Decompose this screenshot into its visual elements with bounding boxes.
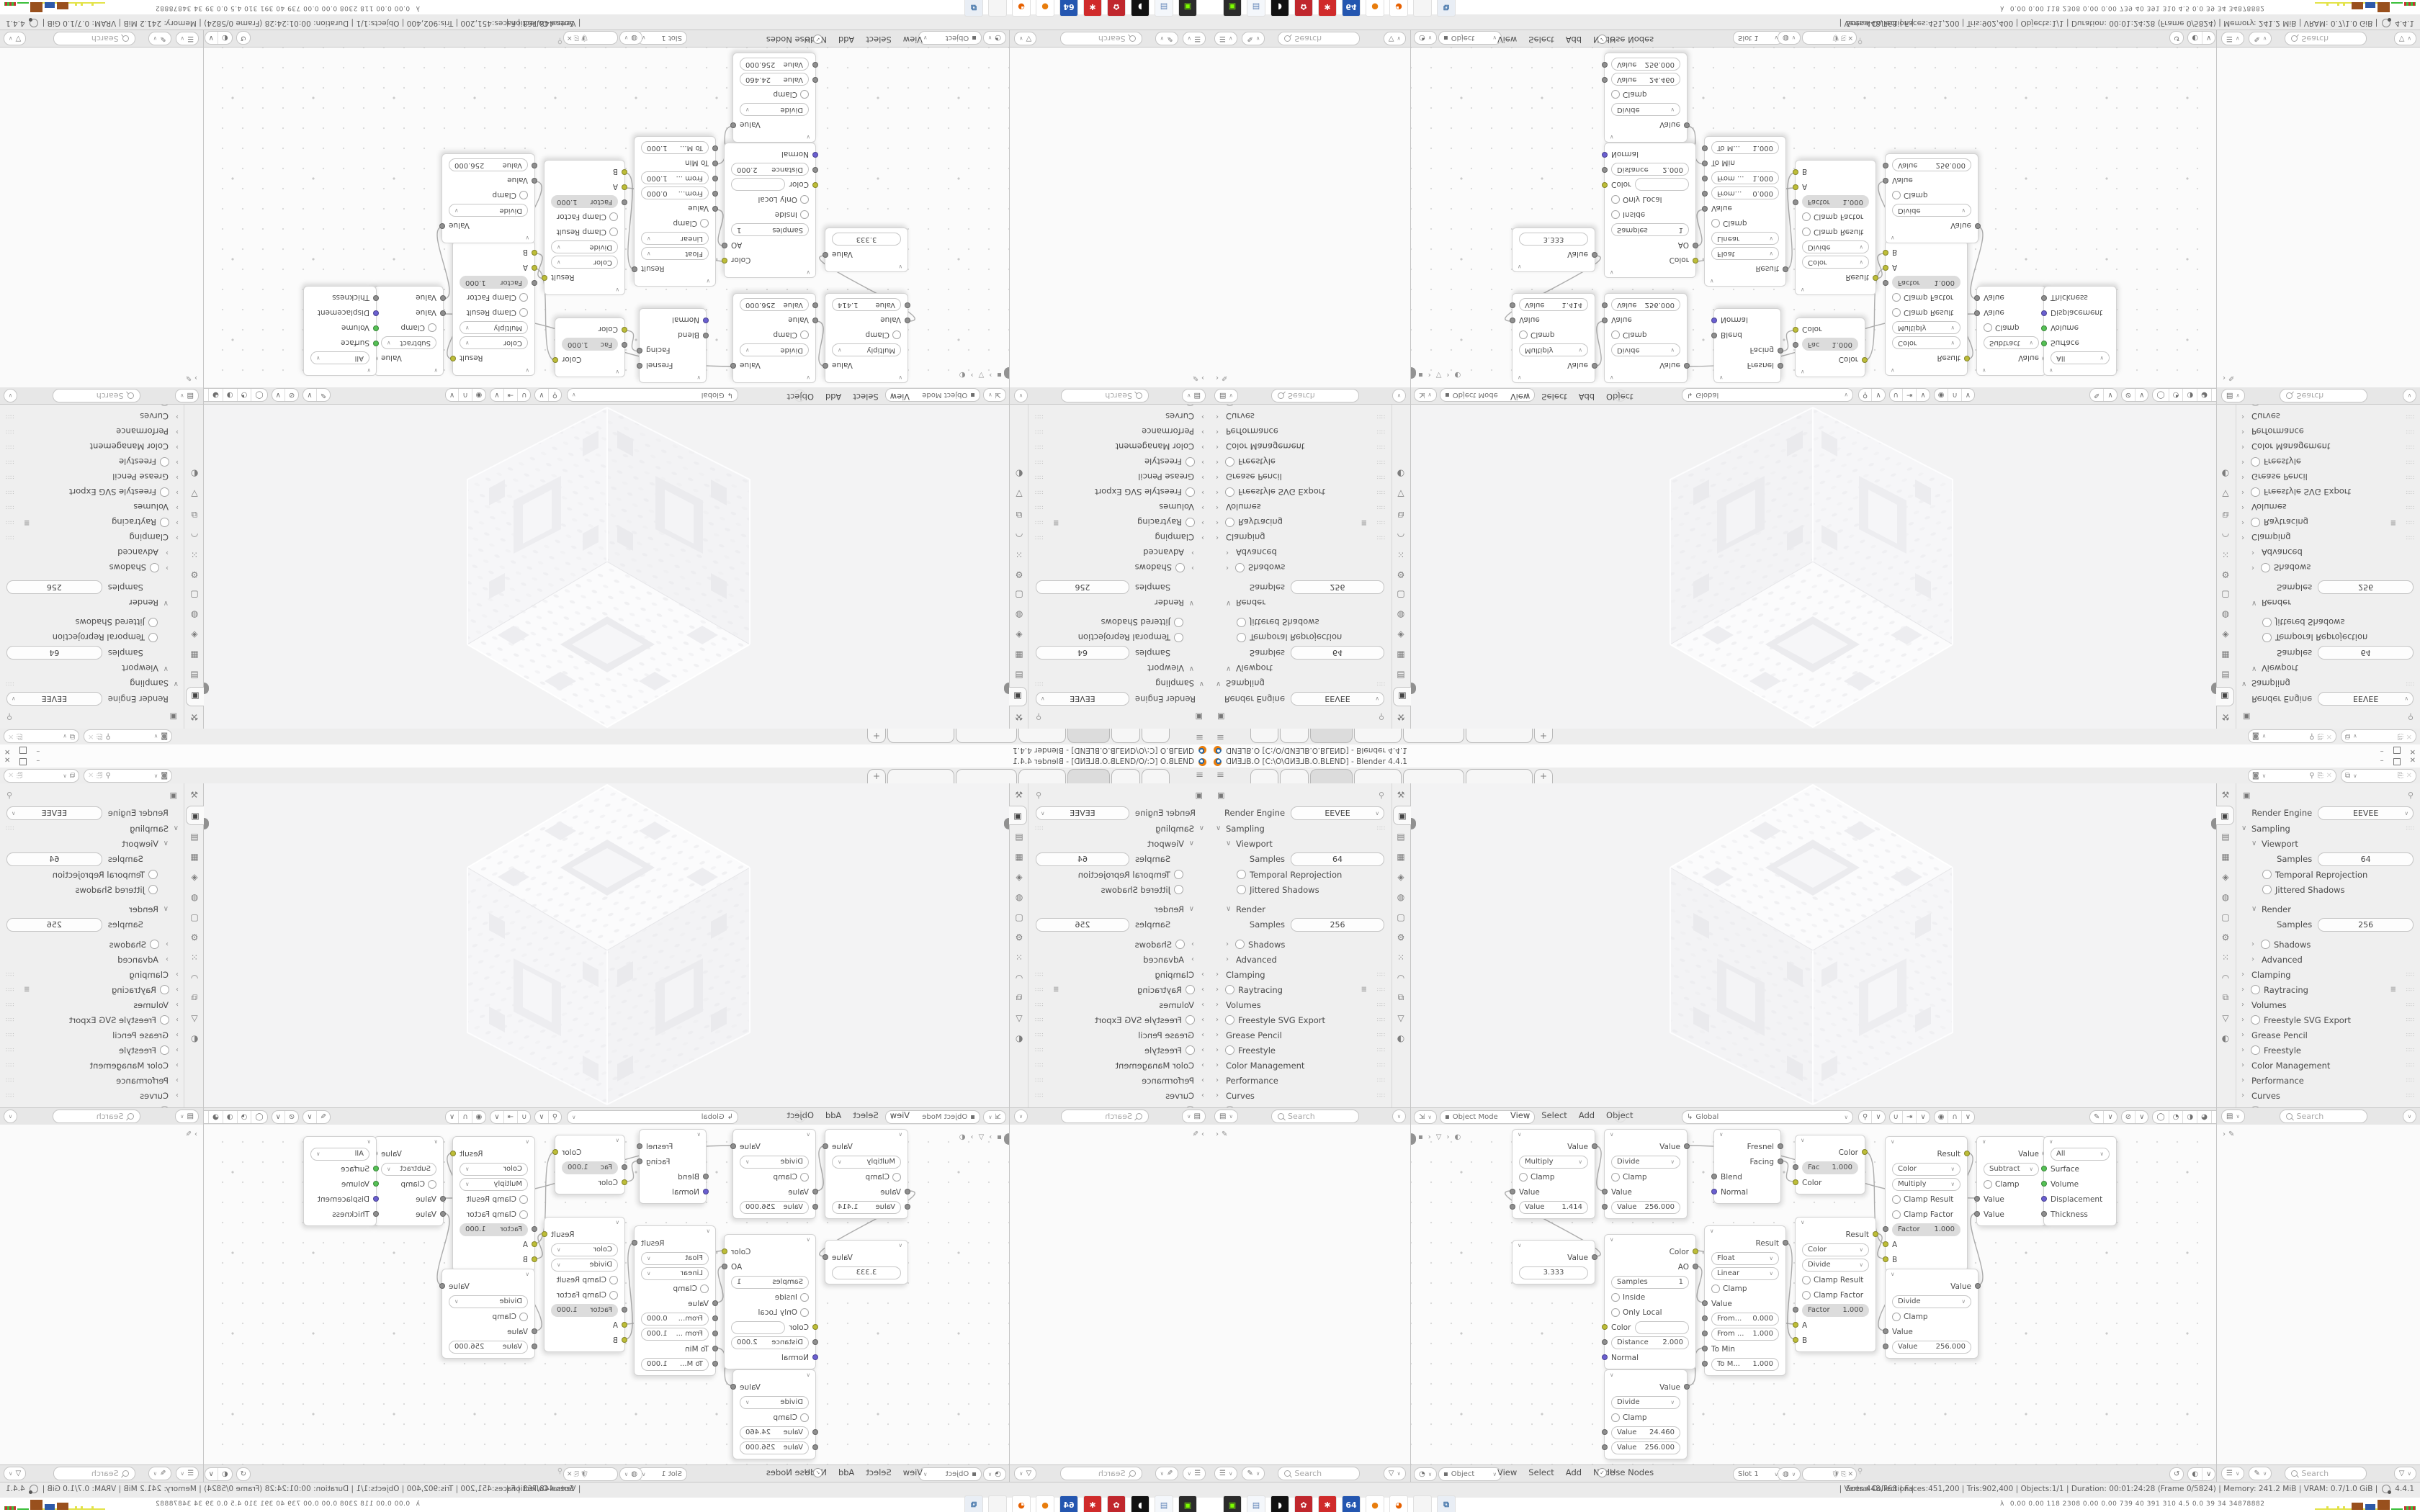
socket-in-value[interactable] [812,1189,818,1194]
checkbox[interactable] [1225,1015,1234,1025]
socket-in-b[interactable] [622,1337,627,1343]
view-layer-name-field[interactable] [25,772,60,780]
shader-editor-type-button[interactable]: ◔∨ [983,31,1006,45]
panel-section-header[interactable]: ›Advanced [1028,952,1210,967]
socket-out-result[interactable] [1783,266,1788,272]
shading-mode-icon[interactable]: ✎ [2090,389,2104,401]
node-header[interactable]: ∨ [2044,366,2116,375]
filter-funnel-button[interactable]: ▽∨ [1384,32,1406,45]
checkbox-row[interactable]: Temporal Reprojection [1028,630,1210,645]
properties-tab-render[interactable]: ▣ [2216,806,2234,825]
value-field[interactable]: Value256.000 [740,299,809,312]
node-select[interactable]: Linear∨ [1711,1267,1779,1280]
checkbox[interactable] [1186,518,1195,527]
workspace-tab[interactable] [1142,729,1170,743]
node-material-output[interactable]: ∨All∨SurfaceVolumeDisplacementThickness [2043,1136,2117,1226]
value-field[interactable]: Value24.460 [740,73,809,86]
close-button[interactable]: ✕ [4,747,10,755]
collapse-menu-button[interactable]: ∨ [4,1110,17,1123]
view-layer-name-field[interactable] [25,732,60,740]
checkbox[interactable] [2261,940,2270,949]
select-field[interactable]: EEVEE∨ [1036,806,1129,820]
node-math-divide-3[interactable]: ∨ValueDivide∨ClampValue24.460Value256.00… [732,53,816,143]
panel-section-header[interactable]: ›Advanced [2236,545,2420,560]
node-layer-weight[interactable]: ∨FresnelFacingBlendNormal [1713,1129,1781,1204]
properties-tab-scene[interactable]: ◈ [1010,626,1028,644]
node-canvas[interactable]: ▪›▽›◐ ∨ValueMultiply∨ClampValueValue1.41… [1411,48,2216,387]
transform-orientation-select[interactable]: ↳Global∨ [1682,1110,1853,1124]
tool-icon[interactable]: ◉ [1935,1111,1949,1123]
shader-editor-type-button[interactable]: ◔∨ [1414,1467,1437,1481]
value-field[interactable]: Value256.000 [1611,299,1680,312]
node-math-divide-3[interactable]: ∨ValueDivide∨ClampValue24.460Value256.00… [1604,53,1688,143]
browse-material-button[interactable]: ◍∨ [619,1467,642,1481]
viewport-canvas[interactable] [1411,405,2216,729]
snap-toggle-button[interactable]: ↺ [2169,31,2184,45]
search-input[interactable]: Search [1060,1467,1142,1480]
node-header[interactable]: ∨ [1605,268,1695,277]
properties-tab-scene[interactable]: ◈ [1010,868,1028,886]
taskbar-icon-save-64[interactable]: 64 [1059,1495,1078,1512]
properties-tab-render[interactable]: ▣ [1009,806,1027,825]
properties-tab-world[interactable]: ◍ [1392,888,1410,906]
filter-type-button[interactable]: ✎∨ [148,32,171,45]
node-value[interactable]: ∨Value3.333 [825,1240,908,1284]
socket-out-facing[interactable] [1778,1158,1783,1164]
panel-section-header[interactable]: ›Performance∷∷ [0,424,184,439]
panel-section-header[interactable]: ›Shadows [1210,937,1391,952]
shading-mode-icon[interactable]: ◔ [2169,389,2184,401]
menu-hamburger-icon[interactable]: ≡ [1196,770,1204,780]
panel-section-header[interactable]: ∨Render [0,595,184,611]
minimize-button[interactable]: – [2380,757,2384,765]
taskbar-icon-save-64[interactable]: 64 [1342,1495,1361,1512]
socket-in-displacement[interactable] [373,1196,379,1202]
properties-tab-object[interactable]: ▢ [2217,908,2234,926]
close-button[interactable]: ✕ [2410,757,2416,765]
menu-add[interactable]: Add [1579,1110,1595,1120]
properties-tab-tool[interactable]: ⚒ [186,708,203,726]
checkbox-row[interactable]: Jittered Shadows [2236,615,2420,630]
node-select[interactable]: Color∨ [1802,1243,1869,1256]
properties-tab-particles[interactable]: ⁙ [1392,948,1410,966]
panel-section-header[interactable]: ›Freestyle∷∷ [1028,1043,1210,1058]
properties-tab-material[interactable]: ◐ [2217,1029,2234,1047]
search-input[interactable]: Search [53,1467,135,1480]
node-select[interactable]: All∨ [310,352,369,365]
value-field[interactable]: Distance2.000 [1611,1336,1689,1349]
value-field[interactable]: Distance2.000 [731,163,809,176]
minimize-button[interactable]: – [36,747,40,755]
value-field[interactable]: Value256.000 [1611,1441,1680,1454]
shading-mode-icon[interactable]: ◑ [223,1111,237,1123]
tool-icon[interactable]: ⇥ [503,1111,517,1123]
properties-tab-object[interactable]: ▢ [2217,586,2234,604]
socket-in-value[interactable] [712,206,718,212]
close-icon[interactable]: ✕ [8,772,14,780]
socket-out-color[interactable] [1693,1248,1698,1254]
checkbox-row[interactable]: Jittered Shadows [0,615,184,630]
panel-section-header[interactable]: ›Freestyle SVG Export∷∷ [0,485,184,500]
shading-mode-icon[interactable]: ⊘ [284,1111,298,1123]
taskbar-icon-ghost[interactable] [988,0,1007,17]
value-field[interactable]: Value256.000 [449,1341,528,1354]
filter-funnel-button[interactable]: ▽∨ [4,1467,26,1480]
socket-in-thickness[interactable] [373,295,379,301]
panel-section-header[interactable]: ›Performance∷∷ [0,1073,184,1088]
checkbox[interactable] [1711,220,1720,228]
workspace-tab[interactable] [887,769,954,783]
search-input[interactable]: Search [2280,389,2367,402]
value-field[interactable]: 3.333 [1519,1266,1588,1279]
shading-mode-icon[interactable]: ⊘ [2122,389,2136,401]
header-pill-group[interactable]: ⚲∨ [534,388,562,402]
socket-out-ao[interactable] [1693,243,1698,248]
checkbox[interactable] [1186,1015,1195,1025]
panel-section-header[interactable]: ›Clamping∷∷ [1210,530,1391,545]
color-swatch-field[interactable] [731,1321,785,1334]
socket-in-factor[interactable] [622,199,627,205]
checkbox[interactable] [1237,633,1246,642]
panel-section-header[interactable]: ›Clamping∷∷ [0,967,184,982]
properties-tab-render[interactable]: ▣ [186,687,204,706]
checkbox[interactable] [800,1413,809,1422]
node-mix-color-multiply[interactable]: ∨ResultColor∨Multiply∨Clamp ResultClamp … [1885,240,1968,376]
minimize-button[interactable]: – [36,757,40,765]
workspace-tab[interactable] [1403,729,1464,743]
menu-add[interactable]: Add [1566,35,1582,45]
checkbox[interactable] [2262,870,2272,879]
panel-section-header[interactable]: ›Volumes∷∷ [2236,997,2420,1012]
shading-mode-icon[interactable]: ◑ [2183,1111,2197,1123]
workspace-tab[interactable] [1280,769,1309,783]
number-field[interactable]: 64 [1291,647,1384,660]
checkbox[interactable] [1186,985,1195,994]
panel-section-header[interactable]: ∨Render [1028,595,1210,611]
panel-section-header[interactable]: ∨Viewport [0,661,184,676]
taskbar-icon-display-settings[interactable]: ⧉ [964,0,983,17]
workspace-tab[interactable] [956,729,1017,743]
checkbox[interactable] [1237,885,1246,894]
properties-tab-scene[interactable]: ◈ [1392,868,1410,886]
properties-tab-render[interactable]: ▣ [1009,687,1027,706]
value-field[interactable]: Value1.414 [1519,299,1588,312]
panel-section-header[interactable]: ›Raytracing≣∷∷ [0,982,184,997]
properties-tab-constraints[interactable]: ⧉ [1392,989,1410,1007]
panel-section-header[interactable]: ›Raytracing≣∷∷ [1210,515,1391,530]
properties-tab-constraints[interactable]: ⧉ [1392,505,1410,523]
node-header[interactable]: ∨ [1512,1130,1595,1139]
transform-orientation-select[interactable]: ↳Global∨ [1682,388,1853,402]
node-header[interactable]: ∨ [1714,373,1780,382]
close-icon[interactable]: ✕ [2406,772,2412,780]
panel-section-header[interactable]: ›Curves∷∷ [0,1088,184,1103]
socket-in-distance[interactable] [1602,167,1608,173]
color-swatch-field[interactable] [731,179,785,192]
panel-section-header[interactable]: ›Curves∷∷ [1028,409,1210,424]
taskbar-icon-blender[interactable]: ● [1036,0,1054,17]
socket-in-fac[interactable] [1793,342,1798,348]
properties-tab-object[interactable]: ▢ [1392,908,1410,926]
socket-in-normal[interactable] [812,152,818,158]
properties-tab-object[interactable]: ▢ [1010,586,1028,604]
overlay-toggle-button[interactable]: ◐∨ [205,31,233,45]
node-select[interactable]: Float∨ [1711,248,1779,261]
node-math-divide[interactable]: ∨ValueDivide∨ClampValueValue256.000 [1604,1129,1688,1219]
node-math-multiply[interactable]: ∨ValueMultiply∨ClampValueValue1.414 [825,293,908,383]
checkbox[interactable] [519,294,528,302]
maximize-button[interactable] [19,758,27,765]
panel-section-header[interactable]: ›Performance∷∷ [1028,424,1210,439]
filter-funnel-button[interactable]: ▽∨ [2394,32,2416,45]
panel-section-header[interactable]: ›Grease Pencil∷∷ [2236,1027,2420,1043]
socket-in-fac[interactable] [1793,1164,1798,1170]
shading-mode-icon[interactable]: ◑ [223,389,237,401]
transform-orientation-select[interactable]: ↳Global∨ [567,388,738,402]
checkbox[interactable] [609,1291,618,1300]
value-field[interactable]: Distance2.000 [1611,163,1689,176]
checkbox[interactable] [1186,457,1195,467]
shading-pill-group[interactable]: ✎∨ [302,1110,331,1124]
socket-out-result[interactable] [632,266,637,272]
socket-out-value[interactable] [1684,122,1690,128]
taskbar-icon-red-app-1[interactable]: ✿ [1107,0,1126,17]
node-header[interactable]: ∨ [1886,1269,1978,1279]
filter-funnel-button[interactable]: ▽∨ [1014,1467,1036,1480]
tool-icon[interactable]: ⇥ [1903,1111,1917,1123]
view-layer-selector[interactable]: ⧉∨ ⎘ ✕ [4,769,79,783]
node-select[interactable]: Divide∨ [1892,204,1971,217]
node-math-divide[interactable]: ∨ValueDivide∨ClampValueValue256.000 [732,293,816,383]
filter-type-button[interactable]: ✎∨ [148,1467,171,1480]
collapse-menu-button[interactable]: ∨ [2403,1110,2416,1123]
properties-tab-material[interactable]: ◐ [1392,465,1410,483]
pin-icon[interactable]: ⚲ [1857,1467,1863,1475]
copy-icon[interactable]: ⎘ [97,732,102,740]
properties-tab-object-data[interactable]: ▽ [1010,1009,1028,1027]
node-header[interactable]: ∨ [1886,1137,1967,1146]
node-select[interactable]: Divide∨ [1611,104,1680,117]
node-select[interactable]: Divide∨ [449,1295,528,1308]
menu-add[interactable]: Add [838,1467,854,1477]
editor-type-button[interactable]: ▤∨ [2221,389,2245,402]
node-select[interactable]: Subtract∨ [1984,1163,2039,1176]
node-math-multiply[interactable]: ∨ValueMultiply∨ClampValueValue1.414 [1512,1129,1595,1219]
socket-in-from-[interactable] [1702,1315,1708,1321]
checkbox[interactable] [519,309,528,318]
socket-in-value[interactable] [812,302,818,308]
panel-section-header[interactable]: ∨Sampling∷∷ [1028,821,1210,836]
panel-section-header[interactable]: ∨Viewport [1210,836,1391,851]
panel-section-header[interactable]: ›Advanced [0,952,184,967]
checkbox[interactable] [1611,1308,1620,1317]
checkbox[interactable] [160,985,169,994]
material-name-field[interactable]: 🛡⎘✕ [563,1467,618,1481]
material-slot-select[interactable]: Slot 1∨ [637,31,687,45]
properties-tab-constraints[interactable]: ⧉ [186,505,203,523]
node-math-multiply[interactable]: ∨ValueMultiply∨ClampValueValue1.414 [1512,293,1595,383]
socket-in-a[interactable] [1793,184,1798,190]
scene-name-field[interactable] [2269,772,2306,780]
workspace-tab[interactable] [1111,729,1140,743]
checkbox[interactable] [1175,563,1185,572]
socket-in-volume[interactable] [373,1181,379,1187]
node-select[interactable]: Multiply∨ [1892,322,1960,335]
node-header[interactable]: ∨ [555,1135,624,1145]
checkbox[interactable] [1611,196,1620,204]
tool-icon[interactable]: ⚲ [1859,1111,1872,1123]
checkbox[interactable] [1174,618,1183,627]
panel-section-header[interactable]: ›Shadows [1028,937,1210,952]
socket-in-b[interactable] [532,1256,537,1262]
shading-pill-group[interactable]: ◯◔◑◕∨ [2152,1110,2225,1124]
socket-in-value[interactable] [532,1328,537,1334]
socket-in-value[interactable] [1602,1444,1608,1450]
pin-icon[interactable]: ⚲ [2408,791,2414,800]
checkbox[interactable] [1892,1313,1901,1321]
checkbox[interactable] [148,618,158,627]
socket-in-from-[interactable] [712,1315,718,1321]
socket-in-to-min[interactable] [712,1346,718,1351]
filter-type-button[interactable]: ✎∨ [2249,32,2272,45]
node-header[interactable]: ∨ [1605,1370,1687,1380]
socket-out-color[interactable] [722,258,727,264]
socket-in-value[interactable] [812,1204,818,1210]
menu-view[interactable]: View [1510,392,1530,402]
viewport-canvas[interactable] [204,783,1009,1107]
value-field[interactable]: Value1.414 [1519,1201,1588,1214]
checkbox[interactable] [1611,331,1620,340]
panel-section-header[interactable]: ›Simplify∷∷ [0,405,184,409]
socket-in-volume[interactable] [2041,325,2047,331]
socket-out-value[interactable] [823,252,828,258]
copy-icon[interactable]: ⎘ [2398,732,2403,740]
checkbox[interactable] [1892,192,1901,200]
checkbox-row[interactable]: Jittered Shadows [0,882,184,897]
value-field[interactable]: Factor1.000 [551,1304,618,1317]
panel-section-header[interactable]: ›Freestyle SVG Export∷∷ [1210,1012,1391,1027]
editor-type-button[interactable]: ▤∨ [175,1110,199,1123]
node-header[interactable]: ∨ [1605,132,1687,142]
menu-view[interactable]: View [903,1467,923,1477]
tool-icon[interactable]: ⚲ [548,389,561,401]
properties-tab-view-layer[interactable]: ▦ [2217,647,2234,665]
panel-section-header[interactable]: ∨Render [2236,901,2420,917]
pin-icon[interactable]: ⚲ [105,772,110,780]
value-field[interactable]: Factor1.000 [1892,1223,1960,1236]
workspace-tab[interactable] [1142,769,1170,783]
shading-mode-icon[interactable]: ◯ [251,389,266,401]
field-icon[interactable]: 🛡 [1832,35,1839,42]
workspace-tab[interactable] [1310,769,1353,783]
properties-tab-modifiers[interactable]: ⚙ [1392,566,1410,584]
menu-hamburger-icon[interactable]: ≡ [1216,732,1224,742]
panel-section-header[interactable]: ›Advanced [1210,545,1391,560]
node-header[interactable]: ∨ [1796,367,1865,377]
taskbar-icon-red-app-1[interactable]: ✿ [1107,1495,1126,1512]
checkbox[interactable] [519,192,528,200]
socket-in-color[interactable] [1793,1179,1798,1185]
overlay-toggle-button[interactable]: ◐∨ [2187,1467,2215,1481]
shader-type-select[interactable]: ▪Object∨ [1438,31,1502,45]
node-header[interactable]: ∨ [635,1226,715,1236]
properties-tab-modifiers[interactable]: ⚙ [186,566,203,584]
checkbox[interactable] [2261,563,2270,572]
socket-in-to-min[interactable] [1702,161,1708,166]
workspace-tab[interactable] [1466,769,1533,783]
filter-funnel-button[interactable]: ▽∨ [4,32,26,45]
node-header[interactable]: ∨ [2044,1137,2116,1146]
value-field[interactable]: From...0.000 [641,187,709,200]
socket-out-value[interactable] [1684,363,1690,369]
material-slot-select[interactable]: Slot 1∨ [637,1467,687,1481]
shading-pill-group[interactable]: ✎∨ [302,388,331,402]
panel-section-header[interactable]: ›Freestyle∷∷ [1028,454,1210,469]
shading-mode-icon[interactable]: ✎ [316,389,330,401]
number-field[interactable]: 64 [2318,647,2414,660]
shader-editor-type-button[interactable]: ◔∨ [1414,31,1437,45]
node-header[interactable]: ∨ [1512,262,1595,271]
socket-in-value[interactable] [905,302,910,308]
filter-type-button[interactable]: ✎∨ [1155,1467,1178,1480]
node-select[interactable]: Divide∨ [1802,241,1869,254]
properties-tab-material[interactable]: ◐ [2217,465,2234,483]
socket-out-value[interactable] [1975,1283,1981,1289]
panel-section-header[interactable]: ∨Render [0,901,184,917]
number-field[interactable]: 256 [1291,918,1384,932]
socket-in-thickness[interactable] [373,1211,379,1217]
checkbox[interactable] [1225,518,1234,527]
shading-mode-icon[interactable]: ◕ [208,1111,223,1123]
scene-name-field[interactable] [114,772,151,780]
workspace-tab[interactable] [1067,769,1110,783]
node-select[interactable]: Color∨ [551,1243,618,1256]
socket-in-value[interactable] [1974,1211,1980,1217]
panel-section-header[interactable]: ›Advanced [0,545,184,560]
properties-tab-scene[interactable]: ◈ [186,868,203,886]
close-icon[interactable]: ✕ [88,772,94,780]
socket-out-fresnel[interactable] [1778,363,1783,369]
viewport-editor-type-button[interactable]: ⇲∨ [983,1110,1006,1124]
checkbox-row[interactable]: Temporal Reprojection [1210,630,1391,645]
value-field[interactable]: Distance2.000 [731,1336,809,1349]
taskbar-icon-firefox[interactable]: ◕ [1012,1495,1031,1512]
menu-select[interactable]: Select [866,35,891,45]
tool-icon[interactable]: ∪ [1890,389,1903,401]
tool-icon[interactable]: ◉ [472,389,486,401]
node-header[interactable]: ∨ [725,268,815,277]
shading-pill-group[interactable]: ◯◔◑◕∨ [2152,388,2225,402]
panel-section-header[interactable]: ›Shadows [1210,560,1391,575]
properties-tab-scene[interactable]: ◈ [2217,626,2234,644]
node-header[interactable]: ∨ [453,366,534,375]
menu-select[interactable]: Select [1528,1467,1554,1477]
taskbar-icon-notepad[interactable]: ▤ [1247,0,1265,17]
pin-icon[interactable]: ⚲ [6,712,12,721]
socket-in-value[interactable] [1602,318,1608,323]
collapse-menu-button[interactable]: ∨ [1014,389,1028,402]
close-button[interactable]: ✕ [4,757,10,765]
node-select[interactable]: Multiply∨ [1892,1178,1960,1191]
shading-mode-icon[interactable]: ◯ [2153,389,2169,401]
checkbox[interactable] [1711,1284,1720,1293]
properties-tab-physics[interactable]: ◠ [186,968,203,986]
scene-selector[interactable]: ◙∨ ⚲ ⎘ ✕ [84,769,172,783]
close-icon[interactable]: ✕ [2326,772,2332,780]
node-header[interactable]: ∨ [725,1235,815,1244]
properties-tab-view-layer[interactable]: ▦ [186,847,203,865]
header-pill-group[interactable]: ∪⇥∨ [490,388,531,402]
